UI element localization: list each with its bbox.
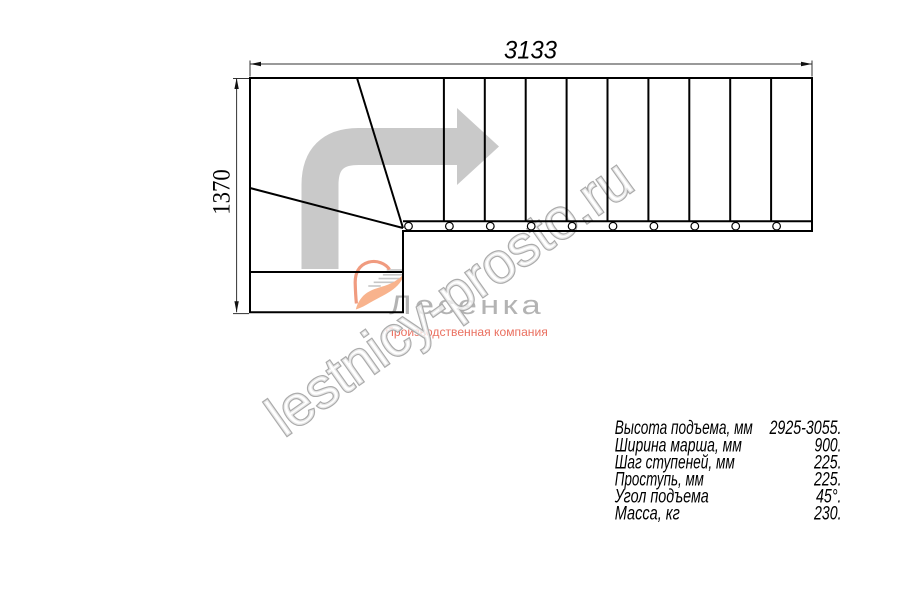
svg-text:Масса, кг: Масса, кг: [615, 504, 680, 525]
svg-text:230.: 230.: [813, 504, 841, 525]
svg-text:1370: 1370: [209, 169, 236, 215]
svg-text:3133: 3133: [504, 37, 557, 65]
